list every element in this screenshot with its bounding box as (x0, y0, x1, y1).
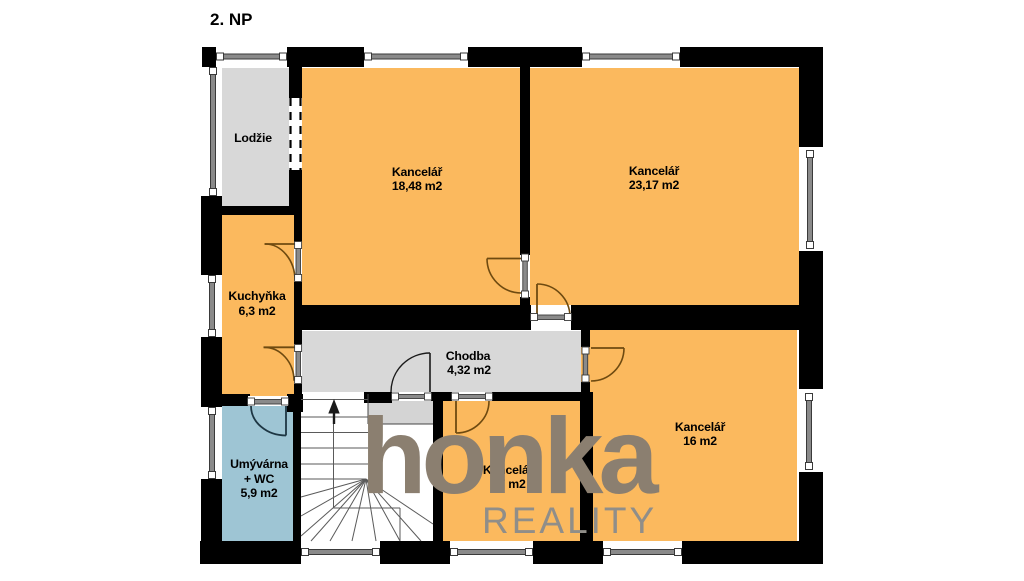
svg-text:Kancelář: Kancelář (675, 420, 726, 434)
svg-text:2. NP: 2. NP (210, 10, 253, 29)
svg-text:Kancelář: Kancelář (629, 164, 680, 178)
svg-text:5,9 m2: 5,9 m2 (240, 486, 277, 500)
svg-text:honka: honka (361, 395, 660, 516)
svg-text:23,17 m2: 23,17 m2 (629, 178, 680, 192)
svg-text:16 m2: 16 m2 (683, 434, 717, 448)
svg-text:4,32 m2: 4,32 m2 (447, 363, 491, 377)
svg-text:Kuchyňka: Kuchyňka (228, 289, 286, 303)
svg-text:+ WC: + WC (244, 472, 275, 486)
svg-text:Umývárna: Umývárna (230, 457, 288, 471)
svg-text:Chodba: Chodba (446, 349, 491, 363)
svg-text:Lodžie: Lodžie (234, 131, 272, 145)
svg-text:6,3 m2: 6,3 m2 (238, 304, 275, 318)
svg-text:Kancelář: Kancelář (392, 165, 443, 179)
svg-text:REALITY: REALITY (482, 500, 657, 541)
svg-text:18,48 m2: 18,48 m2 (392, 179, 443, 193)
